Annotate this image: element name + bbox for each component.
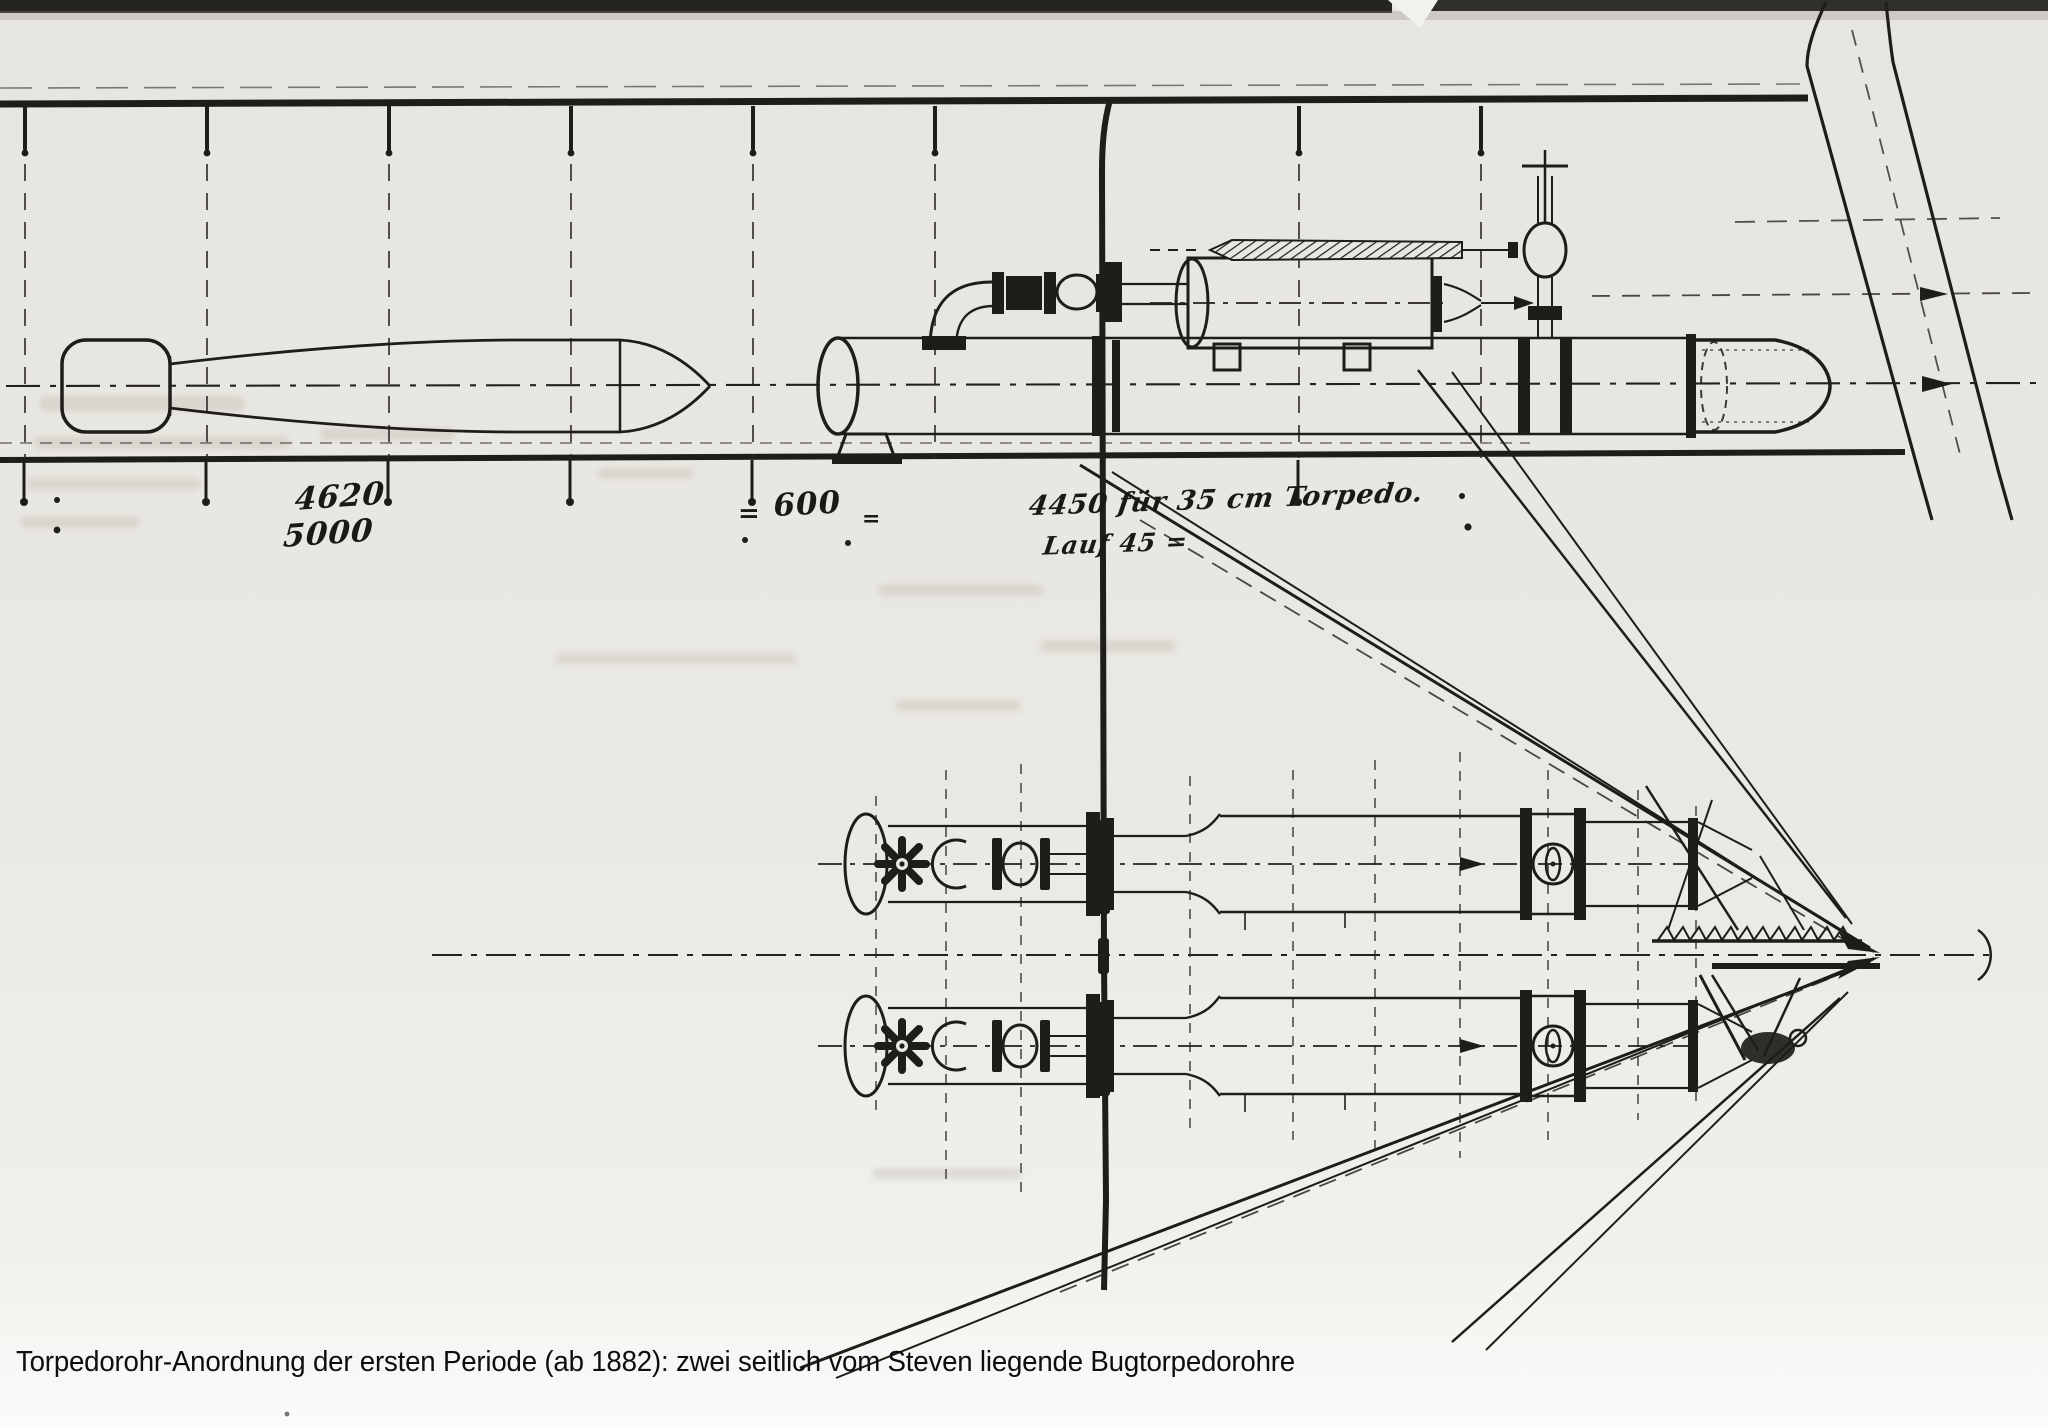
dimension-4620: 4620 xyxy=(294,476,387,518)
torpedo-arrangement-diagram: 4620 5000 = 600 = 4450 für 35 cm Torpedo… xyxy=(0,0,2048,1427)
figure-caption: Torpedorohr-Anordnung der ersten Periode… xyxy=(16,1346,1568,1379)
plan-view xyxy=(432,370,1992,1378)
bow-tip-structure xyxy=(1646,786,1880,1064)
scan-edge-artifacts xyxy=(0,0,2048,28)
stem-post xyxy=(1735,2,2012,520)
equals-mark-left: = xyxy=(738,499,761,529)
dimension-600: 600 xyxy=(773,484,843,523)
hull-side-lines xyxy=(800,370,1874,1378)
dimension-5000: 5000 xyxy=(282,512,375,554)
equals-mark-right: = xyxy=(862,506,881,532)
plan-frames xyxy=(876,752,1696,1194)
note-torpedo-caliber: 4450 für 35 cm Torpedo. xyxy=(1027,476,1426,522)
hull-lines xyxy=(0,84,1905,460)
tube-axis-centerline xyxy=(6,376,2040,392)
charging-pipe-assembly xyxy=(922,240,1534,370)
scanned-book-page: 4620 5000 = 600 = 4450 für 35 cm Torpedo… xyxy=(0,0,2048,1427)
ship-centerline xyxy=(432,930,1992,980)
torpedo-tube-side-view xyxy=(818,334,1830,464)
handwritten-annotations: 4620 5000 = 600 = 4450 für 35 cm Torpedo… xyxy=(54,476,1472,1417)
starboard-bow-tube xyxy=(818,990,1752,1112)
side-elevation-view xyxy=(0,2,2040,520)
note-lauf: Lauf 45 = xyxy=(1040,526,1190,561)
standpipe-valve xyxy=(1522,150,2030,338)
port-bow-tube xyxy=(818,808,1752,930)
